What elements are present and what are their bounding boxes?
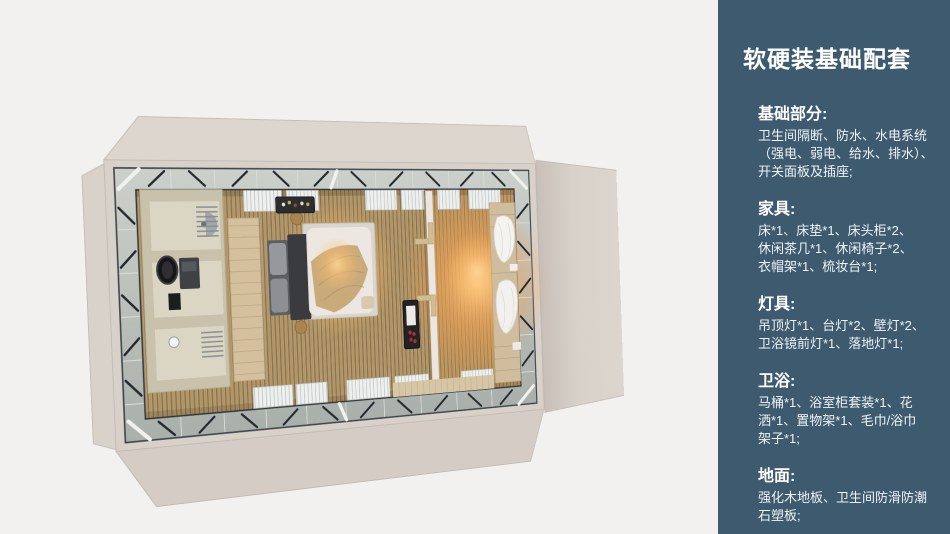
foot-cushion (361, 296, 374, 309)
section-heading: 基础部分: (758, 100, 934, 124)
section-basics: 基础部分: 卫生间隔断、防水、水电系统 （强电、弱电、给水、排水）、 开关面板及… (758, 100, 934, 181)
floorplan-panel (0, 0, 718, 534)
section-heading: 家具: (758, 195, 934, 219)
bathroom-unit (140, 190, 231, 393)
section-heading: 灯具: (758, 290, 934, 314)
section-bathroom: 卫浴: 马桶*1、浴室柜套装*1、花 洒*1、置物架*1、毛巾/浴巾 架子*1; (758, 367, 934, 448)
section-lighting: 灯具: 吊顶灯*1、台灯*2、壁灯*2、 卫浴镜前灯*1、落地灯*1; (758, 290, 934, 353)
bar-shelf (276, 197, 315, 213)
section-line: 开关面板及插座; (758, 163, 934, 181)
bed-pillow (269, 243, 287, 275)
bed-pillow (270, 278, 288, 312)
info-sidebar: 软硬装基础配套 基础部分: 卫生间隔断、防水、水电系统 （强电、弱电、给水、排水… (718, 0, 950, 534)
section-floor: 地面: 强化木地板、卫生间防滑防潮 石塑板; (758, 462, 934, 525)
side-table (291, 212, 303, 225)
side-table (295, 320, 307, 334)
section-furniture: 家具: 床*1、床垫*1、床头柜*2、 休闲茶几*1、休闲椅子*2、 衣帽架*1… (758, 195, 934, 276)
section-line: 石塑板; (758, 507, 934, 525)
section-line: 吊顶灯*1、台灯*2、壁灯*2、 (758, 317, 934, 335)
section-line: 马桶*1、浴室柜套装*1、花 (758, 394, 934, 412)
section-line: 架子*1; (758, 430, 934, 448)
slide: 软硬装基础配套 基础部分: 卫生间隔断、防水、水电系统 （强电、弱电、给水、排水… (0, 0, 950, 534)
section-heading: 卫浴: (758, 367, 934, 391)
section-line: 卫生间隔断、防水、水电系统 (758, 127, 934, 145)
floorplan-render (72, 111, 626, 534)
section-line: 衣帽架*1、梳妆台*1; (758, 258, 934, 276)
spec-sections: 基础部分: 卫生间隔断、防水、水电系统 （强电、弱电、给水、排水）、 开关面板及… (758, 100, 934, 525)
section-line: （强电、弱电、给水、排水）、 (758, 145, 934, 163)
towel (512, 342, 521, 350)
wood-slat-panel (228, 218, 267, 382)
page-title: 软硬装基础配套 (743, 40, 950, 74)
towel (510, 264, 518, 271)
section-line: 床*1、床垫*1、床头柜*2、 (758, 222, 934, 240)
section-line: 洒*1、置物架*1、毛巾/浴巾 (758, 412, 934, 430)
section-heading: 地面: (758, 462, 934, 486)
toilet (169, 337, 180, 348)
minibar-cabinet (403, 300, 420, 349)
vanity-stool (168, 293, 181, 310)
section-line: 卫浴镜前灯*1、落地灯*1; (758, 335, 934, 353)
section-line: 强化木地板、卫生间防滑防潮 (758, 489, 934, 507)
section-line: 休闲茶几*1、休闲椅子*2、 (758, 240, 934, 258)
